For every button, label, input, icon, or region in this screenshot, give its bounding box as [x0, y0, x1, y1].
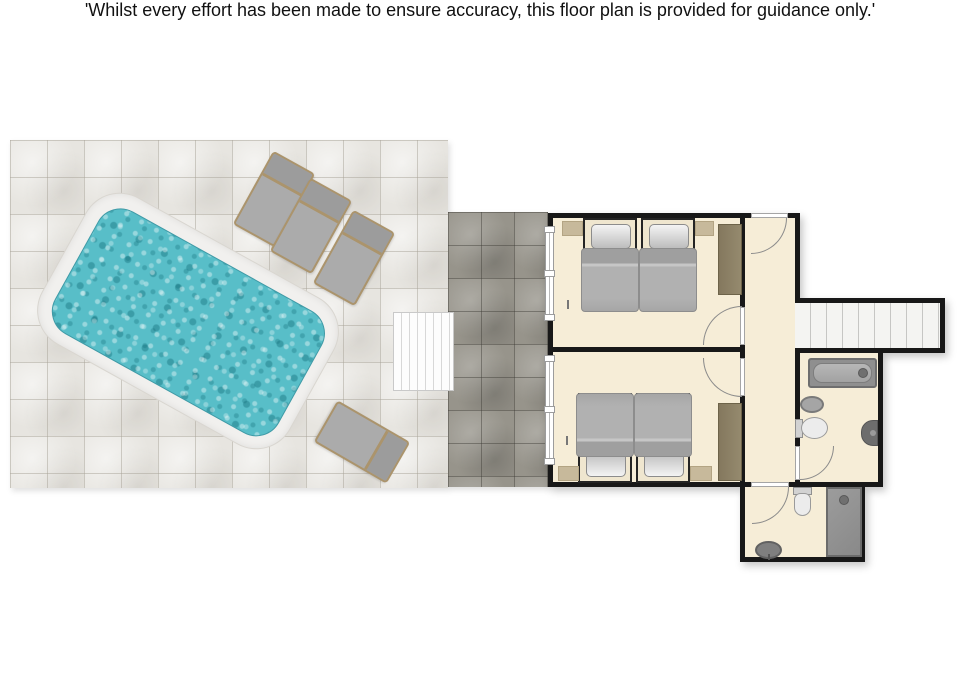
shower-drain: [839, 495, 849, 505]
building-plan: [0, 0, 960, 679]
washbasin: [800, 396, 824, 413]
shower: [826, 487, 862, 557]
rug: [558, 466, 579, 481]
wardrobe: [718, 403, 742, 481]
rug: [562, 221, 583, 236]
bathtub: [808, 358, 877, 388]
wall-unit: [861, 420, 878, 446]
window-cap: [544, 406, 555, 413]
pillow: [649, 224, 689, 249]
window-marker: [566, 436, 568, 445]
window-cap: [544, 314, 555, 321]
duvet: [576, 393, 634, 457]
window-cap: [544, 355, 555, 362]
bathtub-drain: [858, 368, 868, 378]
window-cap: [544, 270, 555, 277]
wardrobe: [718, 224, 742, 295]
rug: [695, 221, 714, 236]
rug: [690, 466, 712, 481]
washbasin: [755, 541, 782, 559]
toilet: [794, 493, 811, 516]
pillow: [591, 224, 631, 249]
hallway: [740, 213, 800, 487]
twin-bed: [641, 218, 695, 308]
window-cap: [544, 226, 555, 233]
floor-plan-page: 'Whilst every effort has been made to en…: [0, 0, 960, 679]
duvet: [634, 393, 692, 457]
wall-unit-detail: [870, 430, 876, 436]
duvet: [581, 248, 639, 312]
basin-tap: [768, 554, 770, 560]
staircase: [795, 298, 945, 353]
twin-bed: [578, 393, 632, 483]
twin-bed: [636, 393, 690, 483]
window-cap: [544, 458, 555, 465]
window-marker: [567, 300, 569, 309]
twin-bed: [583, 218, 637, 308]
toilet: [801, 417, 828, 439]
duvet: [639, 248, 697, 312]
